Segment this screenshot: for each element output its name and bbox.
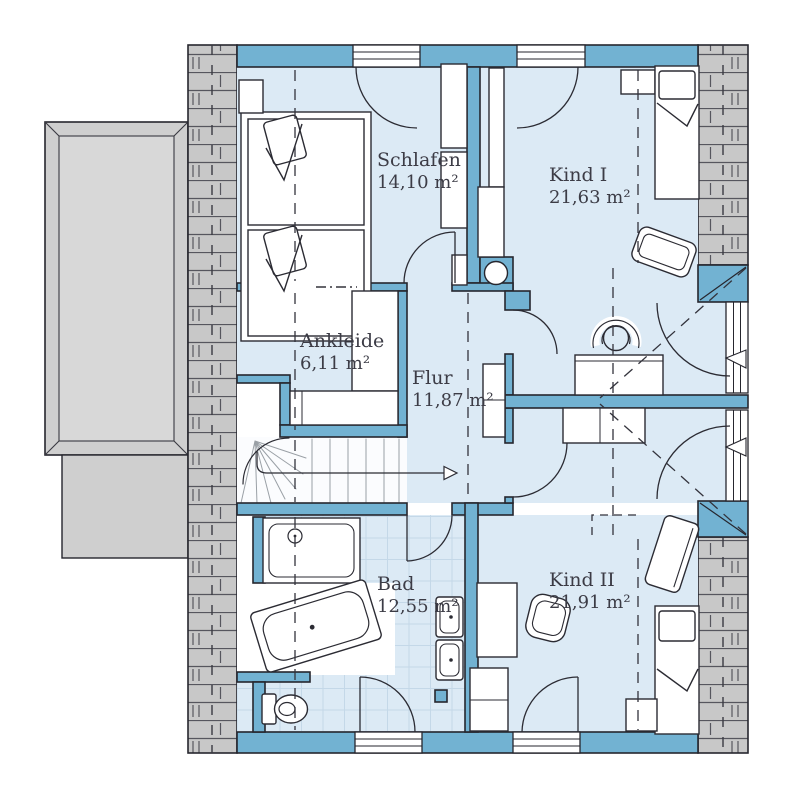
wardrobe-kind2 [470, 668, 508, 731]
storage-ankleide [290, 391, 398, 425]
lower-roof-extension [62, 455, 188, 558]
wall-stairwell [280, 425, 407, 437]
area-kind2: 21,91 m² [549, 592, 631, 613]
wall-exterior-bottom [237, 732, 698, 753]
balcony-inner [59, 136, 174, 441]
area-ankleide: 6,11 m² [300, 353, 370, 374]
shelf-kind2 [563, 408, 645, 443]
window-kind2 [513, 732, 580, 753]
label-schlafen: Schlafen [377, 149, 461, 171]
label-ankleide: Ankleide [299, 330, 384, 352]
toilet [262, 694, 308, 724]
area-kind1: 21,63 m² [549, 187, 631, 208]
label-flur: Flur [412, 367, 453, 389]
label-kind2: Kind II [549, 569, 615, 591]
area-bad: 12,55 m² [377, 596, 459, 617]
label-bad: Bad [377, 573, 414, 595]
bed-kind1 [655, 66, 699, 199]
label-kind1: Kind I [549, 164, 607, 186]
wall-ankleide-flur [398, 291, 407, 437]
area-flur: 11,87 m² [412, 390, 494, 411]
shower [263, 518, 360, 583]
nightstand-kind2 [626, 699, 657, 731]
floor-plan-drawing: Schlafen 14,10 m² Kind I 21,63 m² Anklei… [0, 0, 800, 800]
area-schlafen: 14,10 m² [377, 172, 459, 193]
balcony-roof [45, 122, 188, 558]
nightstand-schlafen [239, 80, 263, 113]
wall-flur-kind2 [505, 408, 513, 443]
ankleide-low-headroom-area [237, 383, 280, 437]
dormer-door-kind1 [726, 302, 748, 393]
wall-kind1-kind2 [505, 395, 748, 408]
wall-flur-kind1 [505, 354, 513, 395]
dormer-door-kind2 [726, 410, 748, 501]
desk-kind1 [575, 355, 663, 395]
shaft-vent-circle [485, 262, 508, 285]
window-kind1 [517, 45, 585, 67]
desk-kind2 [477, 583, 517, 657]
window-bad [355, 732, 422, 753]
floor-plan-page: Schlafen 14,10 m² Kind I 21,63 m² Anklei… [0, 0, 800, 800]
window-schlafen [353, 45, 420, 67]
bed-kind2 [655, 606, 699, 734]
